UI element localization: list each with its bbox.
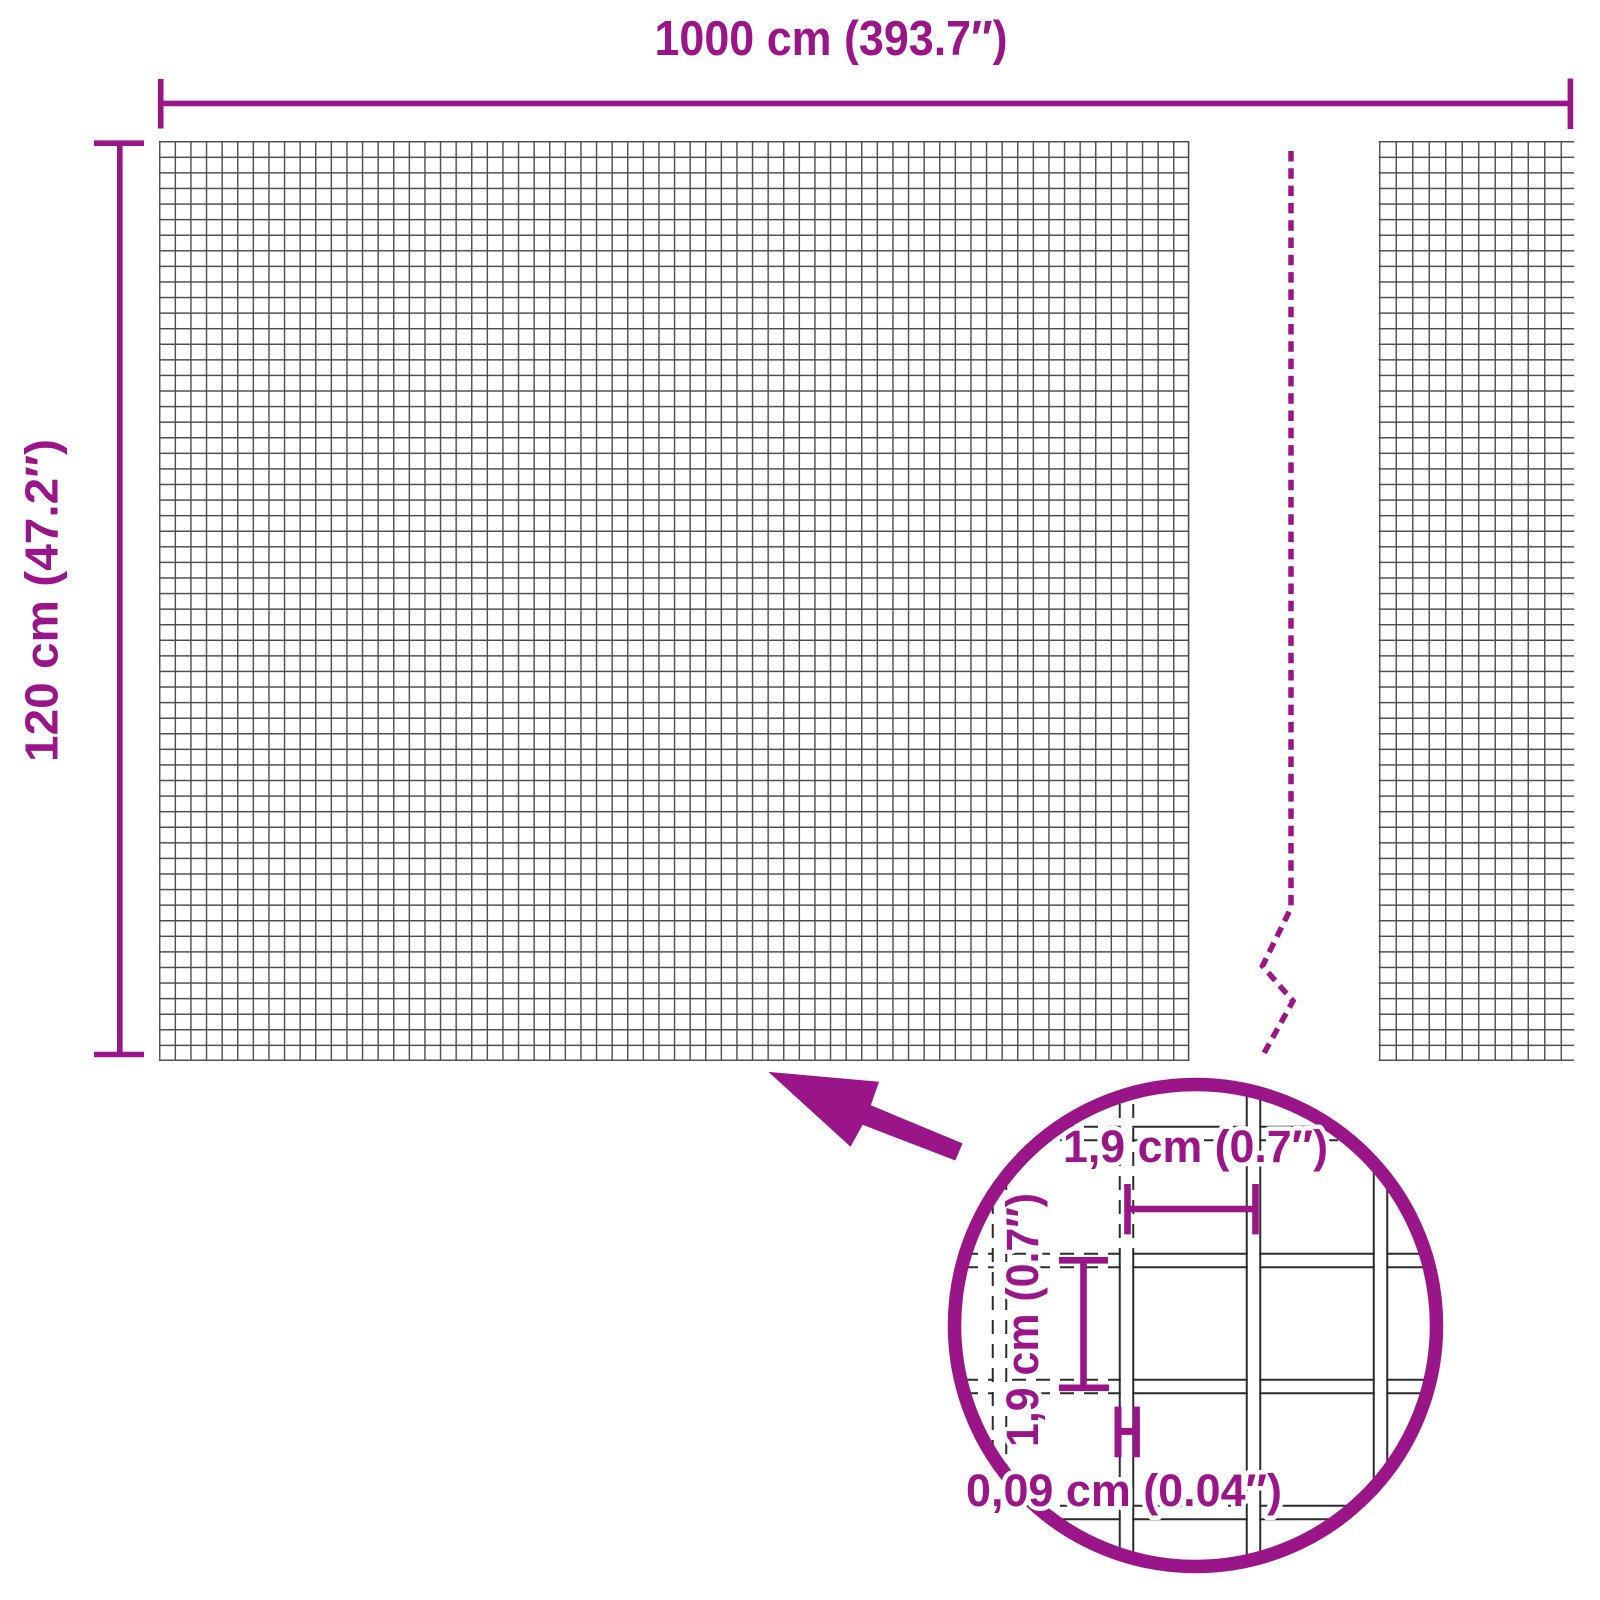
svg-text:1,9 cm (0.7″): 1,9 cm (0.7″) (1063, 1121, 1328, 1172)
svg-text:1,9 cm (0.7″): 1,9 cm (0.7″) (997, 1193, 1048, 1447)
svg-text:1000 cm (393.7″): 1000 cm (393.7″) (655, 11, 1008, 66)
svg-text:120 cm (47.2″): 120 cm (47.2″) (16, 439, 68, 762)
svg-text:0,09 cm (0.04″): 0,09 cm (0.04″) (966, 1465, 1282, 1516)
